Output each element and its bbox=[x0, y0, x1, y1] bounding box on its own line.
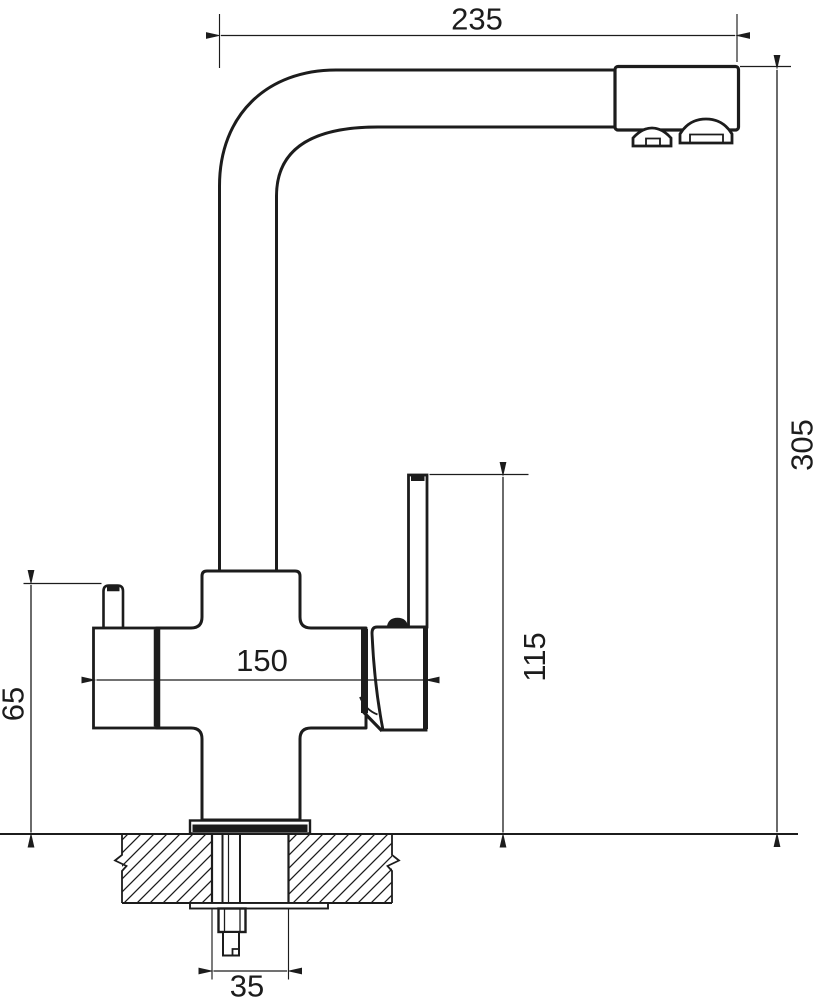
dim-label-115: 115 bbox=[517, 632, 552, 681]
countertop-section bbox=[0, 834, 798, 903]
dim-label-150: 150 bbox=[236, 643, 288, 678]
lever-stem bbox=[409, 475, 428, 627]
technical-drawing-page: 235 305 150 65 115 35 bbox=[0, 0, 824, 1000]
base-flange-fill bbox=[193, 825, 308, 833]
dim-label-235: 235 bbox=[451, 2, 503, 37]
mounting-nut bbox=[219, 909, 246, 933]
spout-head bbox=[615, 67, 739, 131]
lever-base-dome bbox=[388, 619, 408, 628]
dimension-115-lever-height: 115 bbox=[430, 475, 553, 833]
dimension-65-left-handle-height: 65 bbox=[0, 584, 102, 833]
faucet-dimension-drawing: 235 305 150 65 115 35 bbox=[0, 0, 824, 1000]
dim-label-305: 305 bbox=[785, 419, 820, 471]
spout-inner-contour bbox=[277, 127, 618, 571]
faucet bbox=[94, 67, 739, 834]
left-handle-body bbox=[94, 628, 157, 728]
dimension-305-overall-height: 305 bbox=[740, 67, 820, 833]
left-handle-knob bbox=[104, 586, 124, 629]
mounting-washer bbox=[190, 903, 328, 909]
faucet-body bbox=[157, 571, 367, 820]
dim-label-65: 65 bbox=[0, 687, 31, 721]
dimension-235-top-width: 235 bbox=[220, 2, 738, 69]
threaded-shank-end bbox=[223, 932, 239, 956]
dim-label-35: 35 bbox=[230, 969, 264, 1000]
countertop-hatch-right bbox=[289, 835, 393, 904]
right-handle-body bbox=[372, 627, 426, 730]
countertop-hatch-left bbox=[122, 835, 212, 904]
